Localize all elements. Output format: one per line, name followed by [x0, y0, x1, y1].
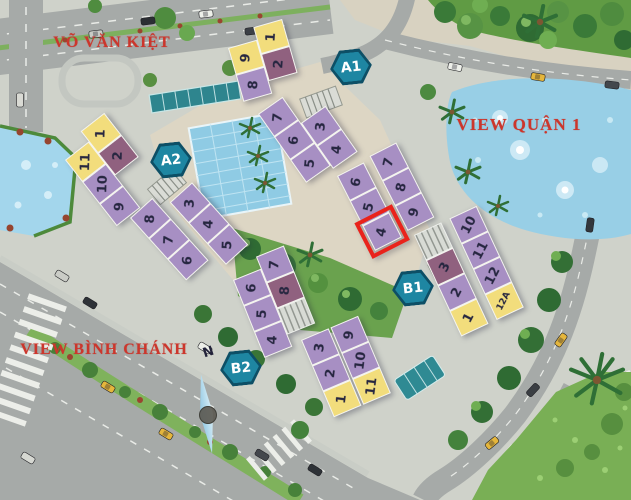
buildings-layer: 9182763541111029837465675843921011167584…: [0, 0, 631, 500]
compass-hub: [199, 406, 217, 424]
view-label-quan-1: VIEW QUẬN 1: [457, 115, 582, 135]
badge-B2-label: B2: [230, 359, 252, 377]
site-plan: 9182763541111029837465675843921011167584…: [0, 0, 631, 500]
building-block-B1-lower: 10311212112A: [414, 206, 524, 337]
badge-B1-label: B1: [402, 279, 424, 297]
view-label-binh-chanh: VIEW BÌNH CHÁNH: [20, 341, 188, 359]
building-block-A1-lower: 76354: [258, 80, 355, 183]
street-label-vo-van-kiet: VÕ VĂN KIỆT: [53, 34, 170, 52]
badge-A1-label: A1: [340, 58, 362, 76]
badge-A2-label: A2: [160, 151, 182, 169]
